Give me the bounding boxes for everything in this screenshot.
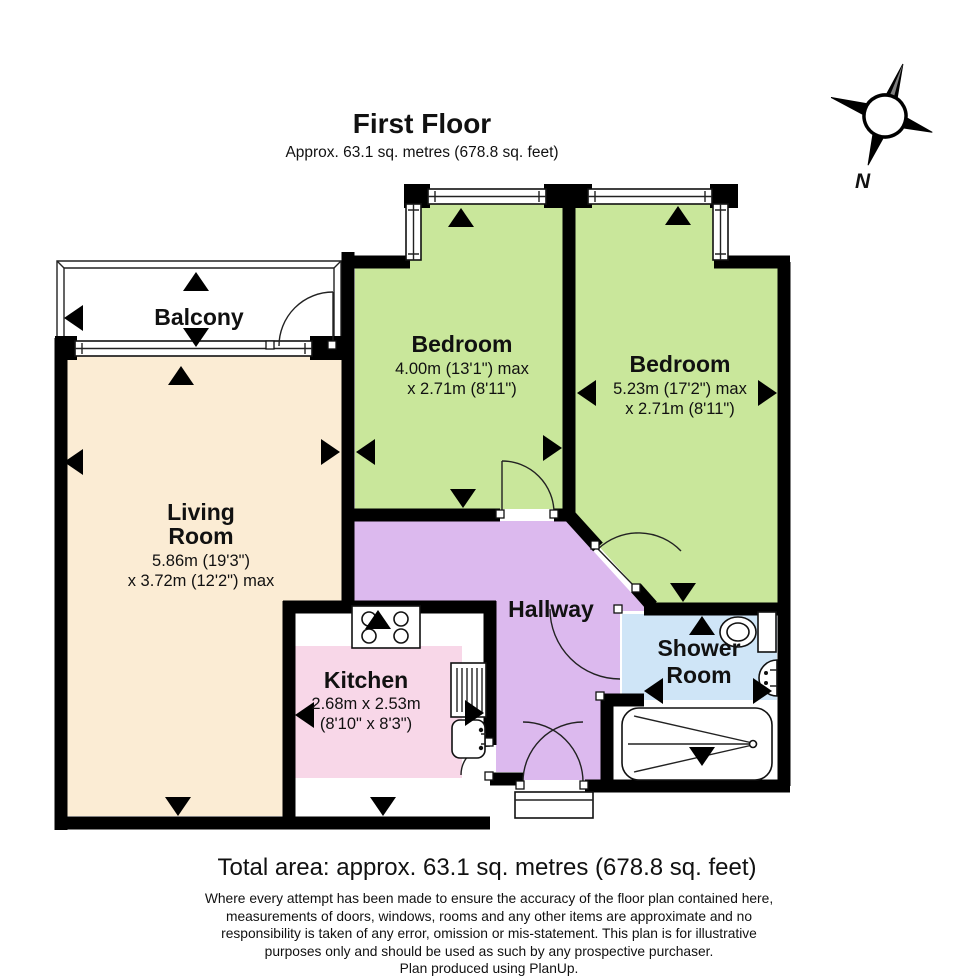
bedroom1-top-window (428, 189, 546, 204)
bedroom2-side-window (713, 204, 728, 260)
disclaimer-line-3: responsibility is taken of any error, om… (221, 926, 757, 941)
bedroom1-dim2: x 2.71m (8'11") (407, 380, 517, 398)
floor-plan-page: First Floor Approx. 63.1 sq. metres (678… (0, 0, 980, 980)
shower-room-label-1: Shower (657, 635, 740, 661)
bedroom2-dim1: 5.23m (17'2") max (613, 380, 747, 398)
living-room-label-2: Room (168, 523, 233, 549)
bedroom1-label: Bedroom (412, 331, 513, 357)
page-title: First Floor (353, 108, 492, 139)
kitchen-dim2: (8'10" x 8'3") (320, 715, 412, 733)
kitchen-label: Kitchen (324, 667, 408, 693)
disclaimer-line-5: Plan produced using PlanUp. (400, 961, 579, 976)
disclaimer-line-2: measurements of doors, windows, rooms an… (226, 909, 752, 924)
page-subtitle: Approx. 63.1 sq. metres (678.8 sq. feet) (285, 144, 558, 161)
front-step (515, 792, 593, 818)
footer: Total area: approx. 63.1 sq. metres (678… (205, 854, 773, 976)
living-room-dim1: 5.86m (19'3") (152, 552, 250, 570)
north-label: N (855, 170, 871, 193)
bedroom1-dim1: 4.00m (13'1") max (395, 360, 529, 378)
compass-rose-icon: N (814, 45, 950, 193)
balcony-arrow-up-icon (183, 272, 209, 291)
bedroom1-side-window (406, 204, 421, 260)
kitchen-dim1: 2.68m x 2.53m (311, 695, 420, 713)
disclaimer-line-4: purposes only and should be used as such… (265, 944, 714, 959)
disclaimer-line-1: Where every attempt has been made to ens… (205, 891, 773, 906)
bedroom2-dim2: x 2.71m (8'11") (625, 400, 735, 418)
bath-icon (622, 708, 772, 780)
shower-room-label-2: Room (666, 662, 731, 688)
kitchen-arrow-down-icon (370, 797, 396, 816)
floor-plan-canvas: First Floor Approx. 63.1 sq. metres (678… (0, 0, 980, 980)
bedroom2-label: Bedroom (630, 351, 731, 377)
total-area-text: Total area: approx. 63.1 sq. metres (678… (218, 854, 757, 881)
bedroom2-top-window (588, 189, 712, 204)
hallway-label: Hallway (508, 596, 594, 622)
living-room-label-1: Living (167, 499, 235, 525)
balcony-arrow-left-icon (64, 305, 83, 331)
living-room-dim2: x 3.72m (12'2") max (128, 572, 275, 590)
balcony-label: Balcony (154, 304, 244, 330)
